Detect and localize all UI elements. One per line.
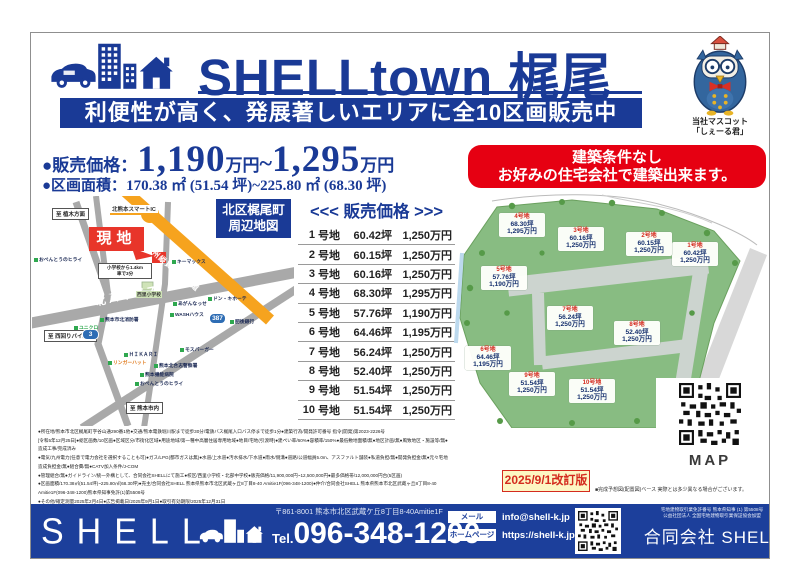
poi-label: WASHハウス <box>175 311 204 318</box>
fine-print-line: [令和5年12月25日]●総区画数/10区画●区域区分/市街化区域●用途地域/第… <box>38 437 450 454</box>
lot-unit: 号地 <box>315 402 342 418</box>
map-poi: あがんなっせ <box>173 300 207 307</box>
site-location-label: 現地 <box>89 227 144 251</box>
lot-name: 10号地 <box>569 380 615 387</box>
homepage-chip: ホームページ <box>448 529 496 541</box>
lot-name: 5号地 <box>481 267 527 274</box>
lot-price: 1,250万円 <box>392 344 452 360</box>
poi-label: キーマックス <box>177 258 206 265</box>
poi-marker <box>170 313 174 317</box>
map-qr-code <box>679 383 741 445</box>
poi-label: 肥後銀行 <box>235 318 254 325</box>
lot-no: 4 <box>298 287 315 299</box>
smart-ic-label: 北熊本スマートIC <box>110 205 158 215</box>
map-poi-school: 西里小学校 <box>136 291 162 298</box>
lot-price: 1,250万円 <box>509 387 555 395</box>
table-row: 1号地60.42坪1,250万円 <box>298 226 455 245</box>
lot-price: 1,295万円 <box>499 228 545 236</box>
mascot-owl-icon <box>679 36 761 116</box>
map-poi: 熊本北合志警察署 <box>154 362 197 369</box>
map-poi: リンガーハット <box>108 359 146 366</box>
destination-kumamoto-city: 至 熊本市内 <box>126 402 163 414</box>
map-title-line1: 北区梶尾町 <box>216 202 291 218</box>
price-min-unit: 万円 <box>226 151 260 176</box>
lot-no: 1 <box>298 229 315 241</box>
no-building-conditions-banner: 建築条件なし お好みの住宅会社で建築出来ます。 <box>468 145 766 188</box>
poi-label: モスバーガー <box>185 346 214 353</box>
poi-marker <box>108 361 112 365</box>
poi-marker <box>180 348 184 352</box>
lot-price: 1,250万円 <box>626 247 672 255</box>
lot-no: 3 <box>298 268 315 280</box>
poi-marker <box>154 364 158 368</box>
table-row: 9号地51.54坪1,250万円 <box>298 381 455 400</box>
fine-print-line: ●所在地/熊本市北区梶尾町字谷山通290番1他●交通/熊本電鉄堀川駅まで徒歩30… <box>38 428 450 437</box>
lot-name: 9号地 <box>509 373 555 380</box>
lot-area: 57.76坪 <box>342 305 392 321</box>
map-poi: ユニクロ <box>74 324 98 331</box>
school-note-line2: 車で3分 <box>99 271 151 277</box>
map-poi: 熊本機能病院 <box>140 371 174 378</box>
lot-card: 2号地60.15坪1,250万円 <box>626 232 672 256</box>
lot-name: 6号地 <box>465 347 511 354</box>
footer-brand: SHELL <box>41 512 214 553</box>
lot-price: 1,250万円 <box>392 227 452 243</box>
lot-price: 1,190万円 <box>392 305 452 321</box>
lot-unit: 号地 <box>315 363 342 379</box>
license-line2: 公益社団法人 全国宅地建物取引業保証協会加盟 <box>629 513 795 519</box>
poi-marker <box>100 318 104 322</box>
map-poi: ドン・キホーテ <box>208 295 247 302</box>
table-row: 5号地57.76坪1,190万円 <box>298 304 455 323</box>
area-map: 九州縦貫自動車道 北バイパス 北区梶尾町 周辺地図 北熊本スマートIC 現地 小… <box>32 196 294 426</box>
lot-price: 1,295万円 <box>392 285 452 301</box>
lot-price: 1,195万円 <box>392 324 452 340</box>
local-road <box>144 202 168 426</box>
map-poi: 肥後銀行 <box>230 318 254 325</box>
footer-bar: SHELL 〒861-8001 熊本市北区武蔵ケ丘8丁目8-40Amitie1F… <box>31 504 769 558</box>
map-poi: キーマックス <box>172 258 206 265</box>
map-poi: WASHハウス <box>170 311 204 318</box>
mascot-caption-line1: 当社マスコット <box>668 117 772 127</box>
footer-qr-panel <box>575 508 621 554</box>
map-qr-panel: MAP <box>656 378 764 478</box>
company-name: 合同会社 SHELL <box>629 523 795 548</box>
lot-area: 60.15坪 <box>342 247 392 263</box>
price-max-unit: 万円 <box>360 151 394 176</box>
footer-address: 〒861-8001 熊本市北区武蔵ケ丘8丁目8-40Amitie1F <box>275 507 443 517</box>
lot-area: 56.24坪 <box>342 344 392 360</box>
poi-marker <box>124 353 128 357</box>
map-title-line2: 周辺地図 <box>216 218 291 234</box>
map-poi: おべんとうのヒライ <box>135 380 183 387</box>
lot-price: 1,250万円 <box>392 402 452 418</box>
lot-card: 7号地56.24坪1,250万円 <box>547 306 593 330</box>
table-row: 7号地56.24坪1,250万円 <box>298 342 455 361</box>
price-label: ●販売価格： <box>42 151 137 176</box>
map-poi: 熊本市北消防署 <box>100 316 139 323</box>
footer-logo-icon <box>199 516 271 548</box>
lot-no: 2 <box>298 249 315 261</box>
lot-card: 4号地68.30坪1,295万円 <box>499 213 545 237</box>
poi-marker <box>173 302 177 306</box>
tel-label: Tel. <box>272 531 293 546</box>
lot-unit: 号地 <box>315 305 342 321</box>
fine-print-line: ●電気/九州電力(任意で電力会社を選択することも可)●ガス/LPG(都市ガスは無… <box>38 454 450 471</box>
flyer-page: SHELLtown 梶尾 利便性が高く、発展著しいエリアに全10区画販売中 当社… <box>0 0 800 564</box>
lot-area: 60.16坪 <box>342 266 392 282</box>
lot-price: 1,250万円 <box>392 382 452 398</box>
lot-unit: 号地 <box>315 324 342 340</box>
lot-name: 1号地 <box>672 243 718 250</box>
highlight-line1: 建築条件なし <box>468 149 766 167</box>
lot-unit: 号地 <box>315 227 342 243</box>
lot-price: 1,250万円 <box>672 257 718 265</box>
fine-print-line: ●管理組合/無●ガイドライン/統一外構として、合同会社SHELLにて施工●校区/… <box>38 472 450 481</box>
area-label: ●区画面積： <box>42 177 126 194</box>
mascot-caption: 当社マスコット 「しぇーる君」 <box>668 117 772 137</box>
lot-name: 3号地 <box>558 228 604 235</box>
table-row: 4号地68.30坪1,295万円 <box>298 284 455 303</box>
highlight-line2: お好みの住宅会社で建築出来ます。 <box>468 167 766 185</box>
table-row: 8号地52.40坪1,250万円 <box>298 362 455 381</box>
lot-card: 10号地51.54坪1,250万円 <box>569 379 615 403</box>
lot-unit: 号地 <box>315 266 342 282</box>
lot-card: 6号地64.46坪1,195万円 <box>465 346 511 370</box>
poi-marker <box>135 382 139 386</box>
lot-no: 8 <box>298 365 315 377</box>
poi-label: あがんなっせ <box>178 300 207 307</box>
lot-no: 9 <box>298 384 315 396</box>
fine-print-line: ●区画面積/170.38㎡(51.54坪)~225.80㎡(68.30坪)●売主… <box>38 480 450 497</box>
lot-unit: 号地 <box>315 344 342 360</box>
lot-price: 1,250万円 <box>558 242 604 250</box>
lot-name: 8号地 <box>614 322 660 329</box>
mail-chip: メール <box>448 511 496 523</box>
internal-road <box>538 293 540 365</box>
lot-area: 60.42坪 <box>342 227 392 243</box>
map-poi: モスバーガー <box>180 346 214 353</box>
map-qr-label: MAP <box>656 452 764 469</box>
lot-card: 1号地60.42坪1,250万円 <box>672 242 718 266</box>
mail-address[interactable]: info@shell-k.jp <box>502 512 570 523</box>
poi-label: おべんとうのヒライ <box>39 256 82 263</box>
tagline-banner: 利便性が高く、発展著しいエリアに全10区画販売中 <box>60 98 642 128</box>
poi-label: 熊本北合志警察署 <box>159 362 197 369</box>
lot-price: 1,250万円 <box>392 363 452 379</box>
lot-price: 1,250万円 <box>392 266 452 282</box>
table-row: 10号地51.54坪1,250万円 <box>298 401 455 420</box>
lot-card: 8号地52.40坪1,250万円 <box>614 321 660 345</box>
table-row: 2号地60.15坪1,250万円 <box>298 245 455 264</box>
site-plan-disclaimer: ■完成予想図(配置図)ベース 実際とは多少異なる場合がございます。 <box>595 486 747 493</box>
area-value: 170.38 ㎡ (51.54 坪)~225.80 ㎡ (68.30 坪) <box>126 178 386 194</box>
price-table-title: <<< 販売価格 >>> <box>298 198 455 222</box>
poi-marker <box>34 258 38 262</box>
lot-price: 1,250万円 <box>392 247 452 263</box>
lot-name: 4号地 <box>499 214 545 221</box>
lot-price: 1,190万円 <box>481 281 527 289</box>
map-poi: おべんとうのヒライ <box>34 256 82 263</box>
map-title: 北区梶尾町 周辺地図 <box>216 199 291 238</box>
lot-card: 3号地60.16坪1,250万円 <box>558 227 604 251</box>
lot-card: 9号地51.54坪1,250万円 <box>509 372 555 396</box>
lot-unit: 号地 <box>315 382 342 398</box>
poi-marker <box>140 373 144 377</box>
table-row: 6号地64.46坪1,195万円 <box>298 323 455 342</box>
poi-label: 熊本機能病院 <box>145 371 174 378</box>
footer-company-block: 宅地建物取引業免許番号 熊本県知事 (1) 第5508号 公益社団法人 全国宅地… <box>629 507 795 548</box>
poi-label: リンガーハット <box>113 359 146 366</box>
mascot-caption-line2: 「しぇーる君」 <box>668 127 772 137</box>
lot-no: 10 <box>298 404 315 416</box>
lot-price: 1,250万円 <box>569 394 615 402</box>
lot-no: 7 <box>298 346 315 358</box>
lot-card: 5号地57.76坪1,190万円 <box>481 266 527 290</box>
lot-price: 1,250万円 <box>547 321 593 329</box>
poi-marker <box>172 260 176 264</box>
lot-area: 51.54坪 <box>342 402 392 418</box>
poi-label: ＨＩＫＡＲＩ <box>129 351 158 358</box>
lot-area: 52.40坪 <box>342 363 392 379</box>
price-table: <<< 販売価格 >>> 1号地60.42坪1,250万円 2号地60.15坪1… <box>298 198 455 420</box>
destination-ueki: 至 植木方面 <box>52 208 89 220</box>
legal-fine-print: ●所在地/熊本市北区梶尾町字谷山通290番1他●交通/熊本電鉄堀川駅まで徒歩30… <box>38 428 450 506</box>
homepage-url[interactable]: https://shell-k.jp <box>502 530 575 541</box>
poi-label: 西里小学校 <box>136 291 162 298</box>
lot-name: 2号地 <box>626 233 672 240</box>
lot-price: 1,195万円 <box>465 361 511 369</box>
lot-no: 5 <box>298 307 315 319</box>
lot-area: 68.30坪 <box>342 285 392 301</box>
lot-name: 7号地 <box>547 307 593 314</box>
poi-label: ユニクロ <box>79 324 98 331</box>
map-poi: ＨＩＫＡＲＩ <box>124 351 158 358</box>
lot-unit: 号地 <box>315 247 342 263</box>
table-row: 3号地60.16坪1,250万円 <box>298 265 455 284</box>
revision-badge: 2025/9/1改訂版 <box>502 470 590 492</box>
area-range-line: ●区画面積：170.38 ㎡ (51.54 坪)~225.80 ㎡ (68.30… <box>42 174 386 195</box>
poi-marker <box>230 320 234 324</box>
poi-marker <box>74 326 78 330</box>
poi-label: ドン・キホーテ <box>213 295 247 302</box>
lot-no: 6 <box>298 326 315 338</box>
title-underline <box>198 91 642 94</box>
lot-area: 64.46坪 <box>342 324 392 340</box>
school-distance-note: 小学校から1.4km 車で3分 <box>98 263 152 279</box>
lot-price: 1,250万円 <box>614 336 660 344</box>
poi-marker <box>208 297 212 301</box>
company-logo-icon <box>40 42 198 94</box>
lot-area: 51.54坪 <box>342 382 392 398</box>
poi-label: 熊本市北消防署 <box>105 316 139 323</box>
poi-label: おべんとうのヒライ <box>140 380 183 387</box>
footer-qr-code <box>578 511 618 551</box>
route-387-shield: 387 <box>209 313 226 324</box>
lot-unit: 号地 <box>315 285 342 301</box>
